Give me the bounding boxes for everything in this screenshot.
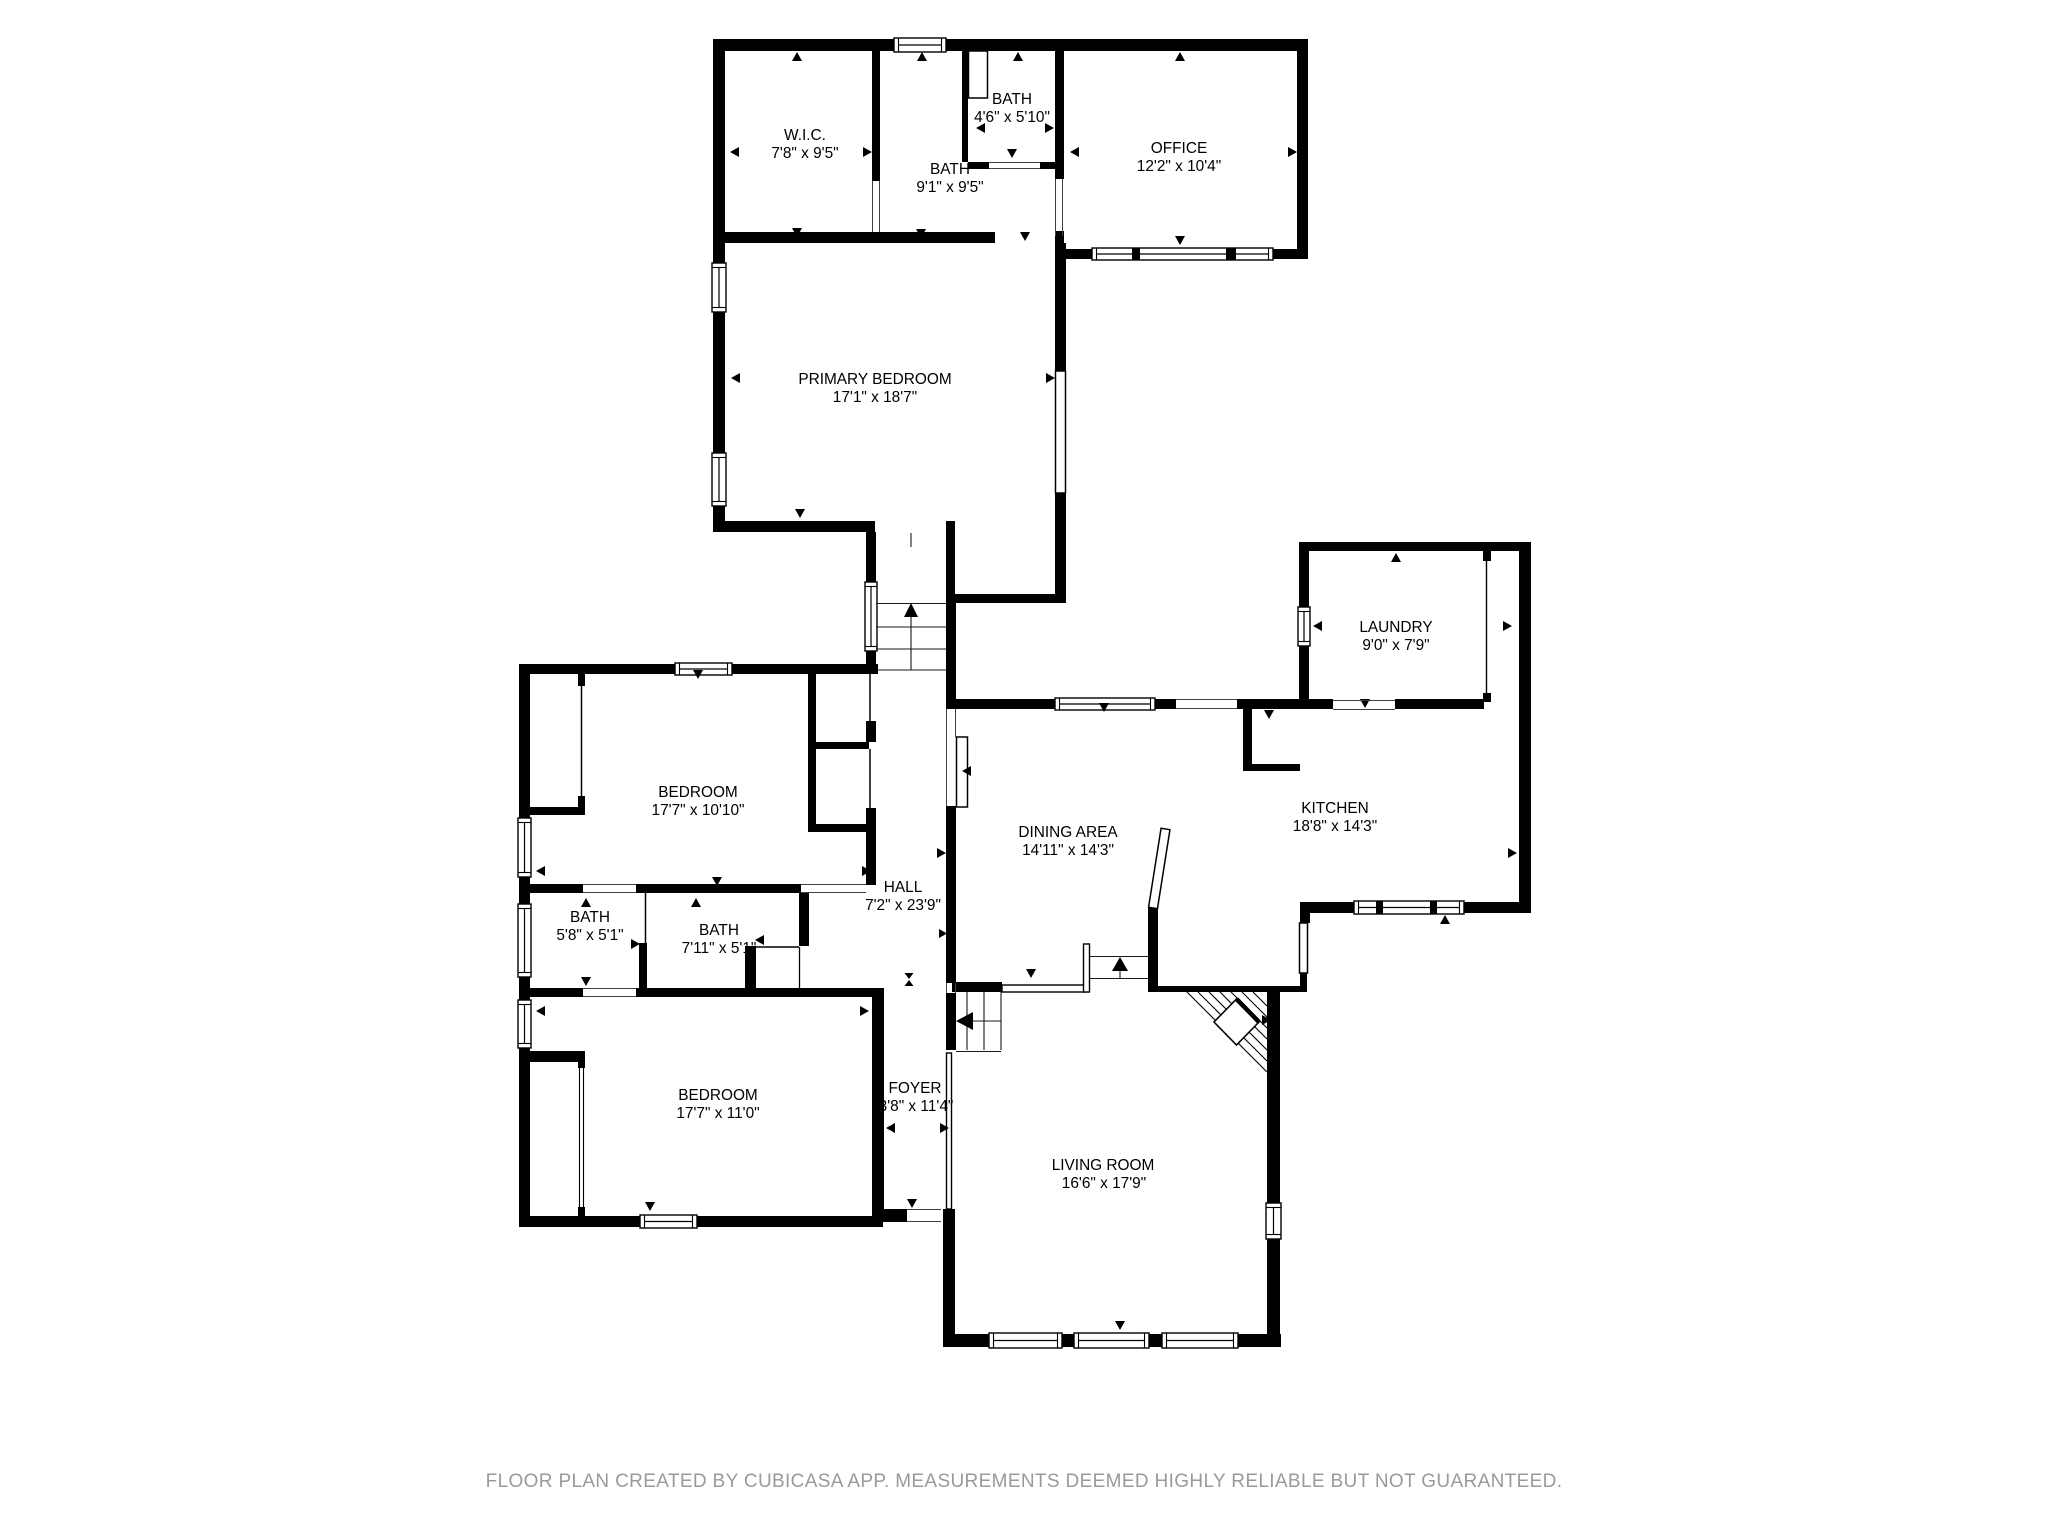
svg-text:5'8" x 5'1": 5'8" x 5'1" <box>556 927 623 944</box>
svg-text:PRIMARY BEDROOM: PRIMARY BEDROOM <box>798 371 951 388</box>
svg-text:18'8" x 14'3": 18'8" x 14'3" <box>1293 818 1377 835</box>
svg-text:BEDROOM: BEDROOM <box>658 784 738 801</box>
svg-text:W.I.C.: W.I.C. <box>784 127 826 144</box>
svg-text:7'8" x 9'5": 7'8" x 9'5" <box>771 145 838 162</box>
svg-text:17'1" x 18'7": 17'1" x 18'7" <box>833 389 917 406</box>
svg-text:9'1" x 9'5": 9'1" x 9'5" <box>916 179 983 196</box>
svg-text:BATH: BATH <box>570 909 610 926</box>
svg-text:BATH: BATH <box>992 91 1032 108</box>
svg-text:FOYER: FOYER <box>888 1080 941 1097</box>
svg-text:17'7" x 11'0": 17'7" x 11'0" <box>676 1105 759 1122</box>
svg-text:OFFICE: OFFICE <box>1151 140 1207 157</box>
svg-text:LAUNDRY: LAUNDRY <box>1359 619 1432 636</box>
svg-text:9'0" x 7'9": 9'0" x 7'9" <box>1362 637 1429 654</box>
svg-text:3'8" x 11'4": 3'8" x 11'4" <box>879 1098 954 1115</box>
svg-text:FLOOR PLAN CREATED BY CUBICASA: FLOOR PLAN CREATED BY CUBICASA APP. MEAS… <box>486 1471 1563 1492</box>
svg-text:LIVING ROOM: LIVING ROOM <box>1052 1157 1155 1174</box>
svg-text:HALL: HALL <box>884 879 923 896</box>
svg-text:BATH: BATH <box>930 161 970 178</box>
svg-text:16'6" x 17'9": 16'6" x 17'9" <box>1062 1175 1146 1192</box>
svg-text:KITCHEN: KITCHEN <box>1301 800 1369 817</box>
svg-text:14'11" x 14'3": 14'11" x 14'3" <box>1022 842 1114 859</box>
svg-text:4'6" x 5'10": 4'6" x 5'10" <box>974 109 1050 126</box>
svg-text:BATH: BATH <box>699 922 739 939</box>
svg-text:7'2" x 23'9": 7'2" x 23'9" <box>865 897 941 914</box>
svg-text:DINING AREA: DINING AREA <box>1018 824 1118 841</box>
svg-text:BEDROOM: BEDROOM <box>678 1087 758 1104</box>
svg-text:12'2" x 10'4": 12'2" x 10'4" <box>1137 158 1221 175</box>
svg-text:17'7" x 10'10": 17'7" x 10'10" <box>652 802 745 819</box>
svg-text:7'11" x 5'1": 7'11" x 5'1" <box>682 940 757 957</box>
